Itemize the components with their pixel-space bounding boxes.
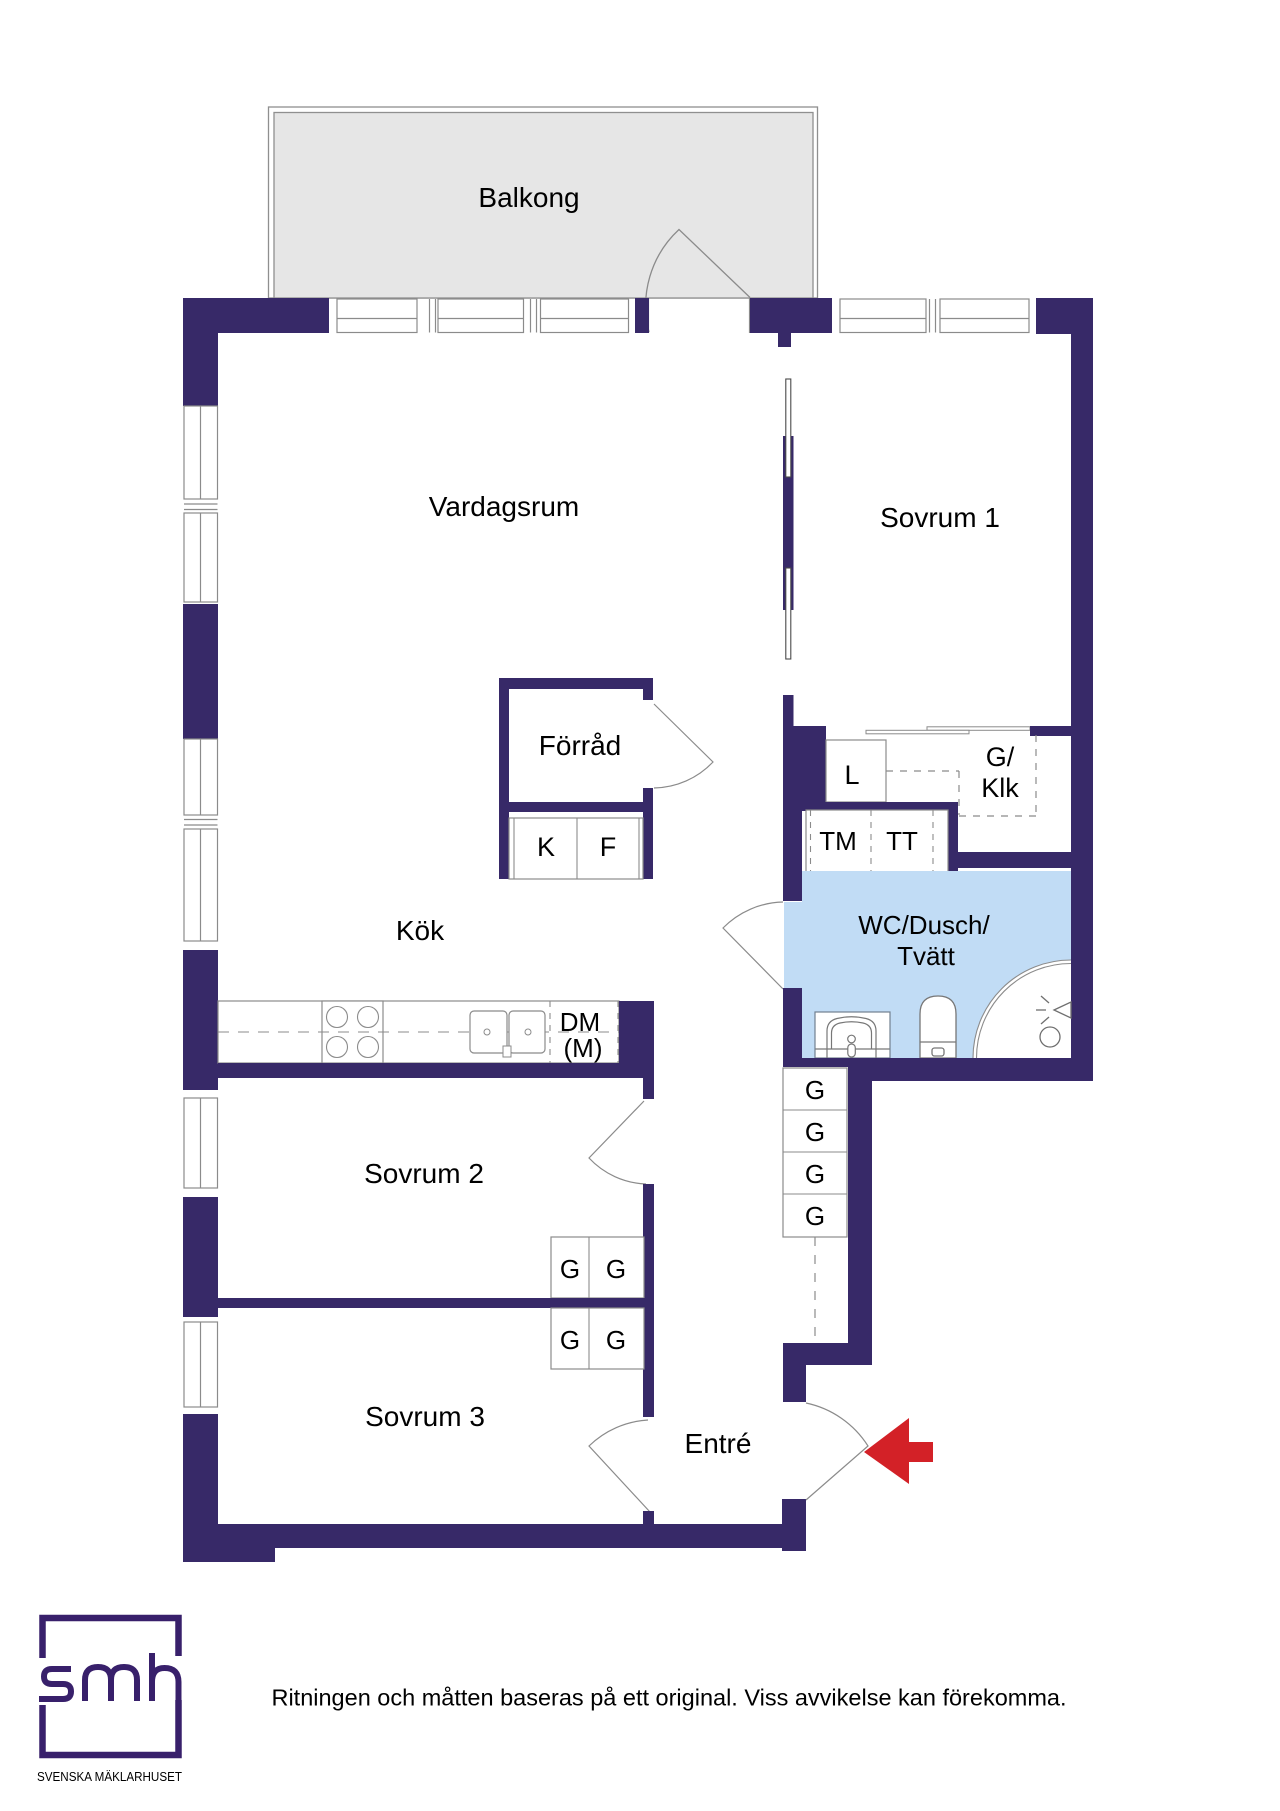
svg-text:G: G xyxy=(560,1254,580,1284)
svg-text:TT: TT xyxy=(886,826,918,856)
svg-text:Sovrum 1: Sovrum 1 xyxy=(880,502,1000,533)
svg-text:G: G xyxy=(805,1117,825,1147)
svg-text:G/: G/ xyxy=(986,742,1015,772)
svg-text:Sovrum 2: Sovrum 2 xyxy=(364,1158,484,1189)
svg-text:G: G xyxy=(606,1254,626,1284)
svg-text:F: F xyxy=(600,832,617,862)
svg-text:Vardagsrum: Vardagsrum xyxy=(429,491,579,522)
svg-text:Tvätt: Tvätt xyxy=(897,941,956,971)
svg-text:Ritningen och måtten baseras p: Ritningen och måtten baseras på ett orig… xyxy=(271,1685,1066,1711)
svg-text:Entré: Entré xyxy=(685,1428,752,1459)
svg-text:Klk: Klk xyxy=(981,773,1019,803)
svg-text:(M): (M) xyxy=(564,1033,603,1063)
svg-text:Förråd: Förråd xyxy=(539,730,621,761)
svg-text:Kök: Kök xyxy=(396,915,445,946)
svg-text:G: G xyxy=(805,1201,825,1231)
svg-text:SVENSKA MÄKLARHUSET: SVENSKA MÄKLARHUSET xyxy=(37,1770,182,1784)
svg-text:G: G xyxy=(560,1325,580,1355)
svg-text:K: K xyxy=(537,832,555,862)
svg-text:Sovrum 3: Sovrum 3 xyxy=(365,1401,485,1432)
svg-text:G: G xyxy=(805,1075,825,1105)
svg-text:TM: TM xyxy=(819,826,857,856)
svg-text:WC/Dusch/: WC/Dusch/ xyxy=(858,910,990,940)
svg-text:L: L xyxy=(844,760,859,790)
svg-text:Balkong: Balkong xyxy=(478,182,579,213)
svg-text:G: G xyxy=(805,1159,825,1189)
svg-text:G: G xyxy=(606,1325,626,1355)
